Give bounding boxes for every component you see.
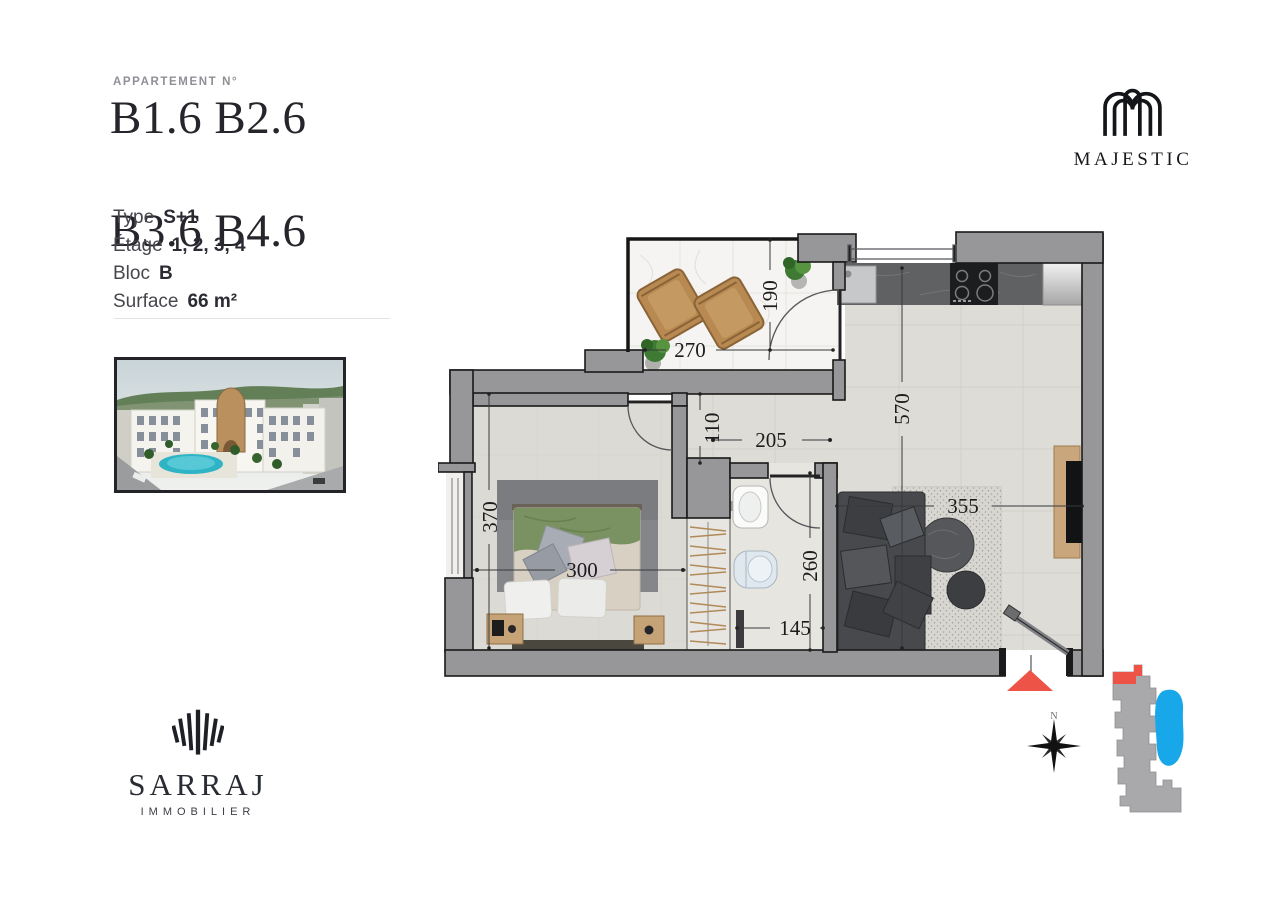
- wardrobe-hangers: [687, 518, 730, 650]
- window-sill: [446, 472, 464, 578]
- dim-terrace-depth: 190: [758, 280, 782, 312]
- site-plan: [1113, 665, 1184, 812]
- apartment-codes-line1: B1.6 B2.6: [110, 92, 306, 144]
- majestic-arches-icon: [1097, 80, 1169, 138]
- spec-value: 1, 2, 3, 4: [172, 235, 246, 257]
- section-divider: [114, 318, 390, 319]
- dim-hall-length: 205: [755, 428, 787, 452]
- spec-value: 66 m²: [187, 291, 237, 313]
- spec-label: Bloc: [113, 263, 150, 285]
- apartment-number-label: APPARTEMENT N°: [113, 76, 238, 88]
- refrigerator: [1043, 263, 1082, 305]
- building-render-image: [114, 357, 346, 493]
- spec-label: Surface: [113, 291, 178, 313]
- tv-console: [1054, 446, 1083, 558]
- entrance-marker-icon: [1007, 670, 1053, 691]
- spec-list: Type S+1 Étage 1, 2, 3, 4 Bloc B Surface…: [113, 207, 246, 319]
- floor-plan: 270 190 110 205 570 355 370 300 260 145 …: [438, 225, 1198, 825]
- dim-living-depth: 570: [890, 393, 914, 425]
- spec-row-type: Type S+1: [113, 207, 246, 229]
- site-pool-shape: [1155, 690, 1183, 766]
- spec-value: S+1: [163, 207, 197, 229]
- majestic-logo-text: MAJESTIC: [1068, 149, 1198, 171]
- sarraj-logo-text: SARRAJ: [108, 767, 288, 803]
- building-render-art: [117, 360, 343, 490]
- spec-label: Étage: [113, 235, 163, 257]
- sofa: [838, 492, 933, 654]
- sarraj-bars-icon: [172, 708, 224, 758]
- dim-living-width: 355: [947, 494, 979, 518]
- kitchen-counter: [837, 263, 1082, 305]
- dim-bedroom-depth: 370: [478, 501, 502, 533]
- spec-label: Type: [113, 207, 154, 229]
- kitchen-window: [848, 245, 956, 262]
- sarraj-logo: SARRAJ IMMOBILIER: [108, 708, 288, 818]
- sarraj-logo-subtext: IMMOBILIER: [108, 806, 288, 818]
- dim-hall-width: 110: [700, 413, 724, 444]
- spec-value: B: [159, 263, 173, 285]
- compass-icon: N: [1027, 711, 1081, 773]
- spec-row-floor: Étage 1, 2, 3, 4: [113, 235, 246, 257]
- dim-bath-width: 145: [779, 616, 811, 640]
- dim-terrace-width: 270: [674, 338, 706, 362]
- dim-bath-depth: 260: [798, 550, 822, 582]
- dim-bedroom-width: 300: [566, 558, 598, 582]
- spec-row-surface: Surface 66 m²: [113, 291, 246, 313]
- toilet: [734, 551, 777, 588]
- spec-row-bloc: Bloc B: [113, 263, 246, 285]
- majestic-logo: MAJESTIC: [1068, 80, 1198, 171]
